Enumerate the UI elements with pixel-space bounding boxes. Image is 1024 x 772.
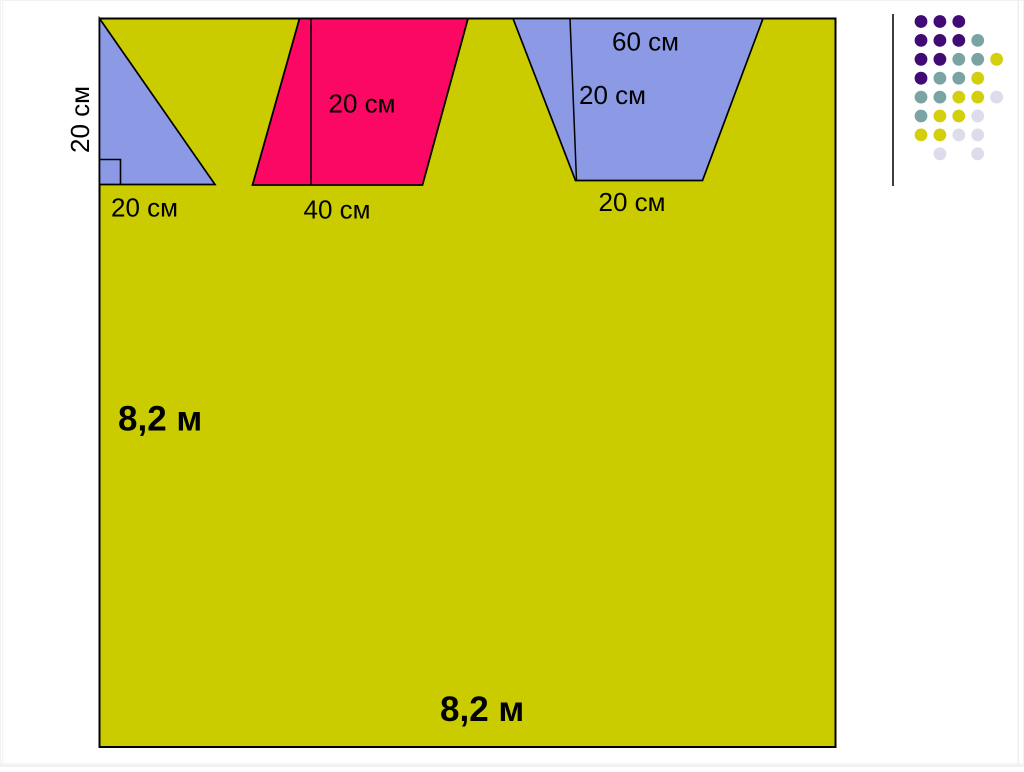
svg-text:8,2 м: 8,2 м bbox=[440, 690, 524, 729]
svg-text:20 см: 20 см bbox=[599, 187, 666, 217]
svg-text:60 см: 60 см bbox=[612, 26, 679, 56]
svg-text:20 см: 20 см bbox=[65, 86, 95, 153]
svg-text:20 см: 20 см bbox=[111, 193, 178, 223]
svg-text:20 см: 20 см bbox=[579, 80, 646, 110]
svg-text:8,2 м: 8,2 м bbox=[118, 400, 202, 439]
svg-text:20 см: 20 см bbox=[329, 89, 396, 119]
svg-text:40 см: 40 см bbox=[304, 194, 371, 224]
